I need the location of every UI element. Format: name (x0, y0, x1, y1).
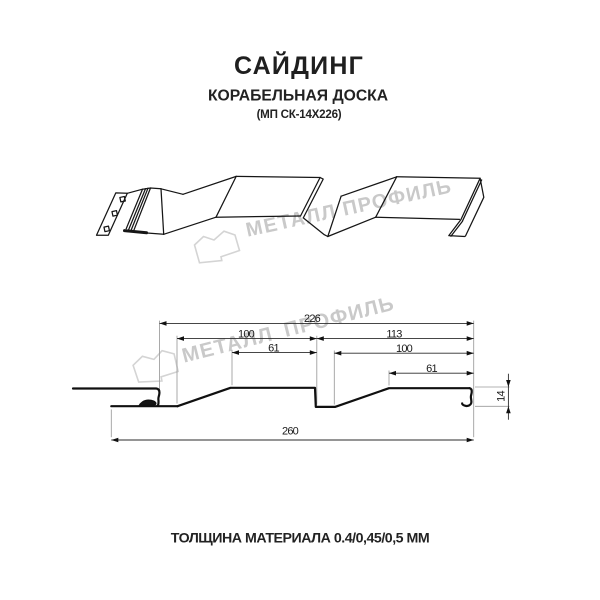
svg-text:14: 14 (496, 391, 508, 402)
svg-text:260: 260 (282, 426, 299, 438)
svg-text:САЙДИНГ: САЙДИНГ (234, 50, 364, 80)
svg-text:(МП СК-14Х226): (МП СК-14Х226) (257, 108, 342, 121)
svg-text:226: 226 (304, 313, 321, 325)
svg-text:ТОЛЩИНА МАТЕРИАЛА 0.4/0,45/0,5: ТОЛЩИНА МАТЕРИАЛА 0.4/0,45/0,5 ММ (171, 531, 429, 547)
svg-text:100: 100 (396, 343, 413, 355)
svg-text:113: 113 (386, 328, 402, 340)
svg-text:61: 61 (426, 363, 437, 375)
svg-text:61: 61 (268, 342, 279, 354)
svg-text:100: 100 (238, 328, 255, 340)
svg-text:КОРАБЕЛЬНАЯ ДОСКА: КОРАБЕЛЬНАЯ ДОСКА (208, 88, 388, 105)
